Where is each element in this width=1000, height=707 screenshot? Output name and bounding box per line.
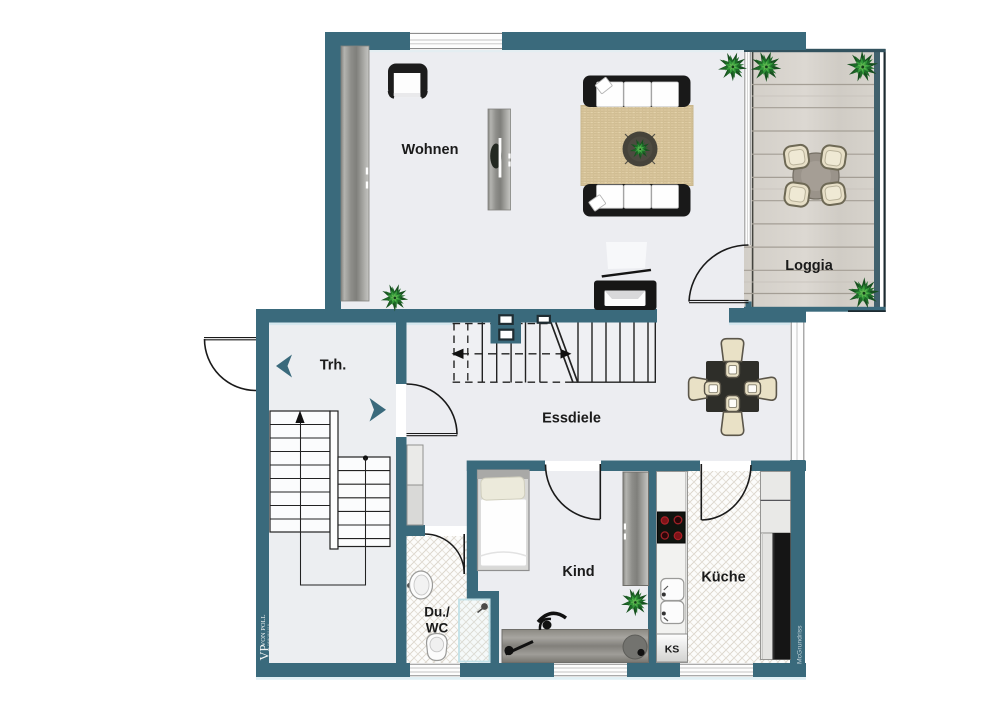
svg-text:McGrundriss: McGrundriss	[797, 625, 804, 664]
svg-text:Du./: Du./	[424, 605, 450, 620]
svg-text:IMMOBILIEN: IMMOBILIEN	[267, 623, 271, 646]
svg-text:KS: KS	[665, 644, 680, 656]
svg-text:WC: WC	[426, 621, 449, 636]
svg-text:Wohnen: Wohnen	[402, 142, 459, 158]
svg-text:Essdiele: Essdiele	[542, 411, 601, 427]
svg-text:Kind: Kind	[562, 564, 594, 580]
svg-text:Küche: Küche	[701, 570, 745, 586]
svg-text:Trh.: Trh.	[320, 358, 347, 374]
svg-text:Loggia: Loggia	[785, 258, 833, 274]
